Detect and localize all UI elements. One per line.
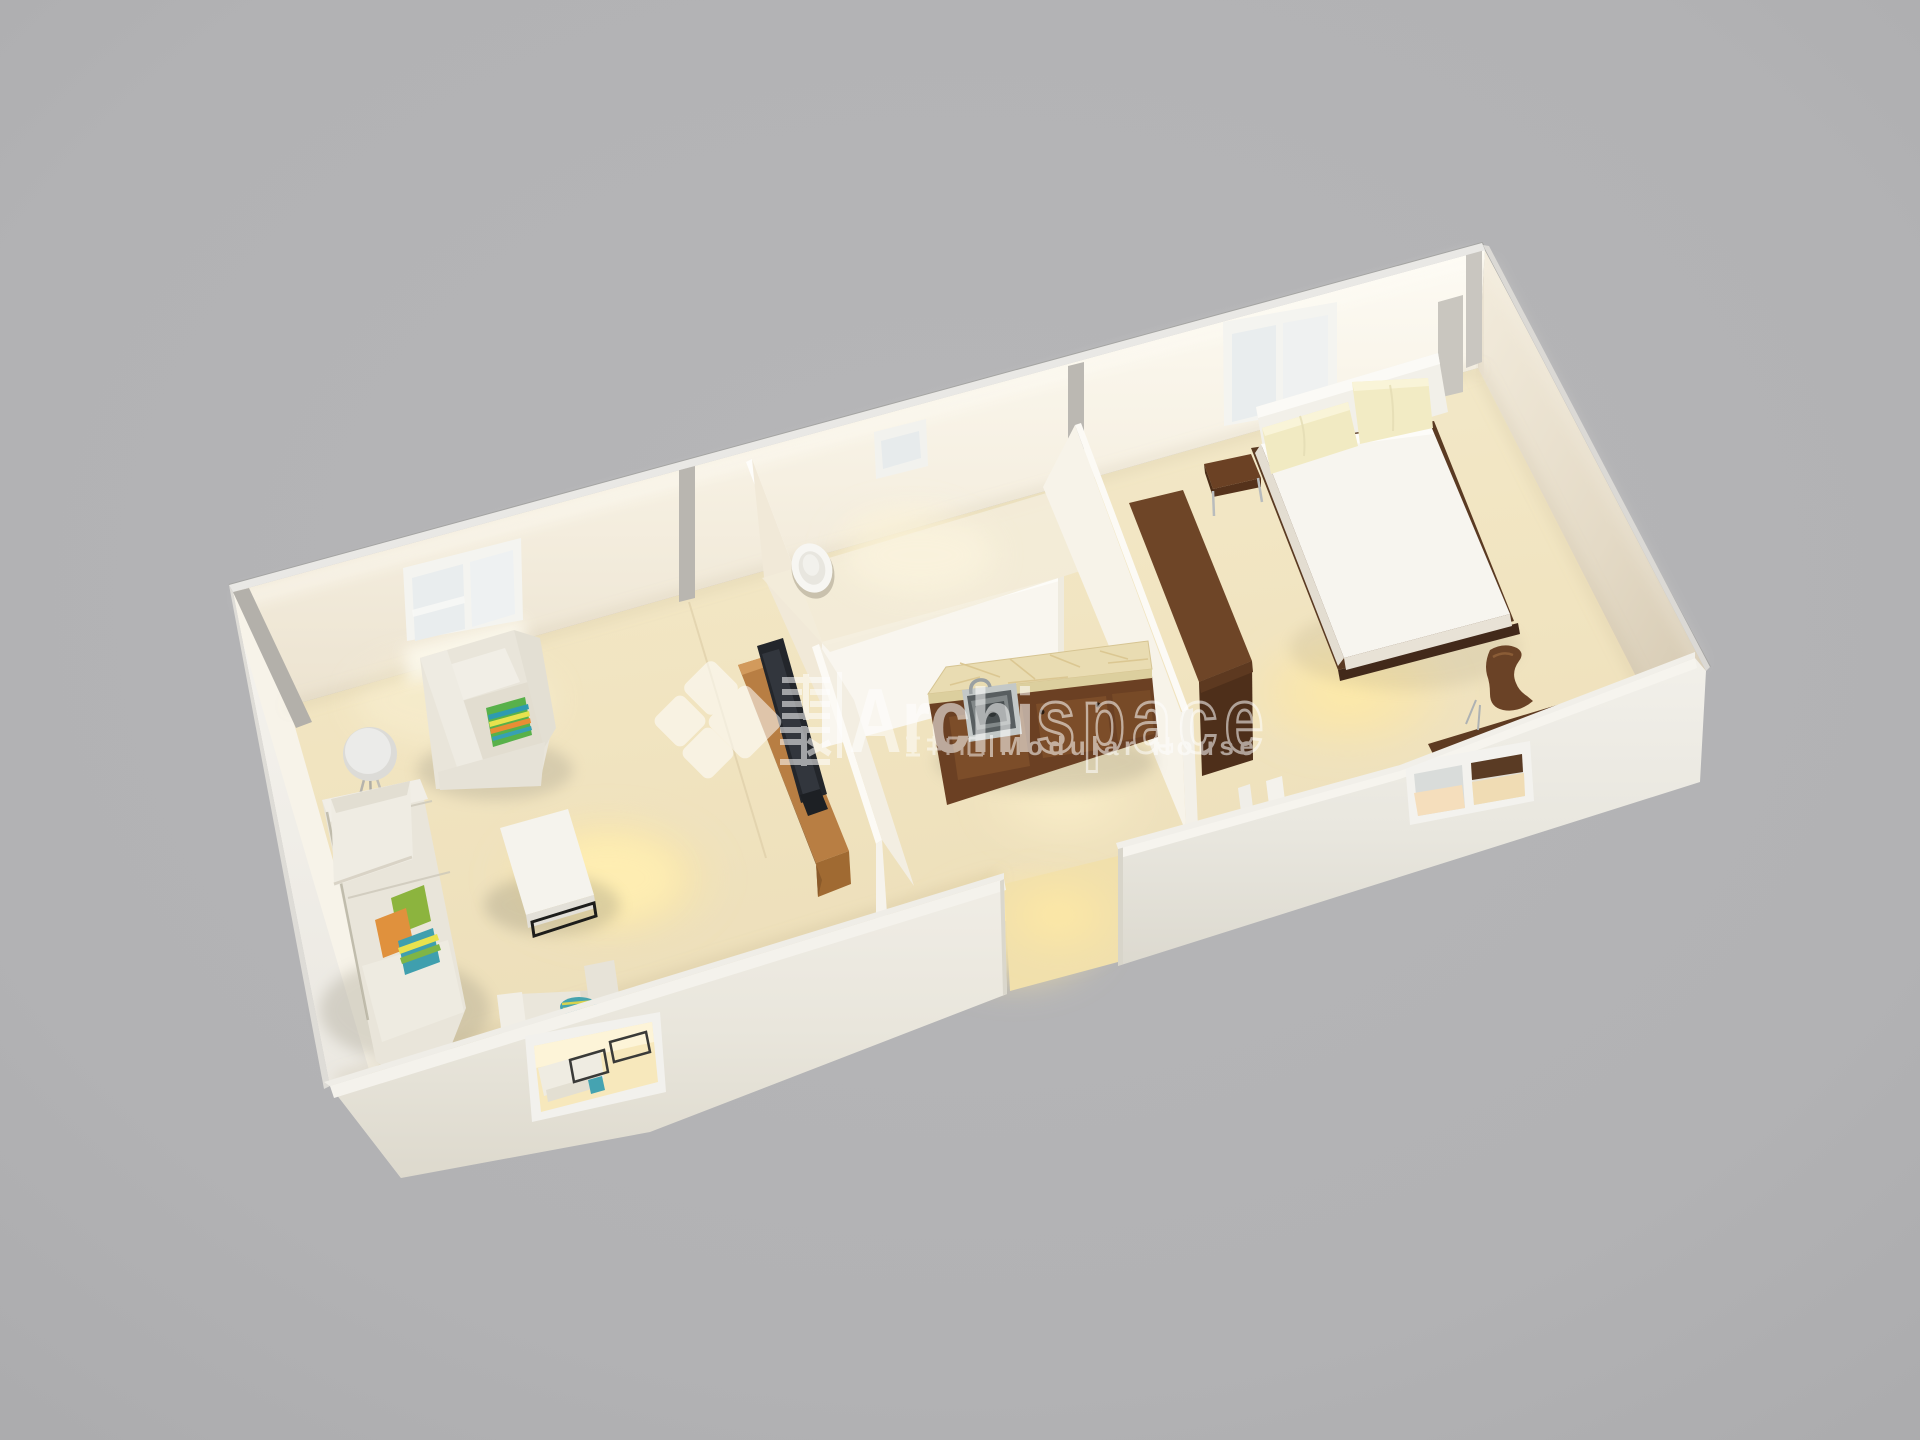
svg-text:Modular House: Modular House — [1000, 731, 1259, 761]
